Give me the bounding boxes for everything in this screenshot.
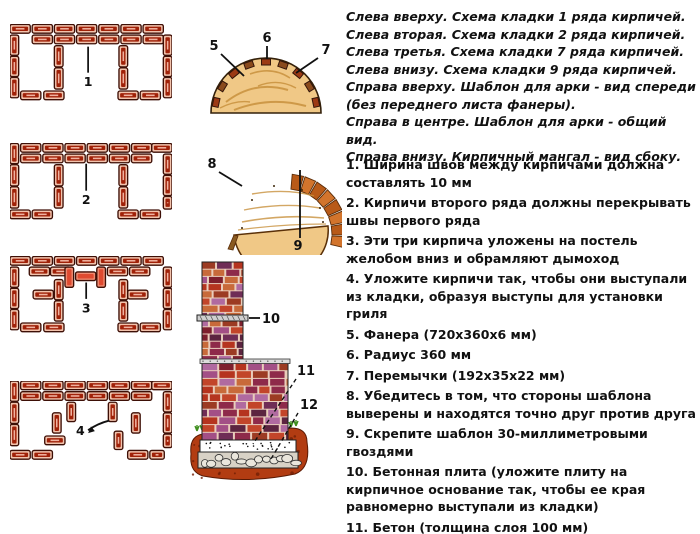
instruction-text: Уложите кирпичи так, чтобы они выступали… <box>346 271 687 321</box>
legend-block: Слева вверху. Схема кладки 1 ряда кирпич… <box>346 8 696 166</box>
legend-line-2: Слева вторая. Схема кладки 2 ряда кирпич… <box>346 26 696 44</box>
diagram-label-2: 2 <box>82 192 91 207</box>
brick-course-7-diagram: 3 <box>10 256 172 336</box>
instructions-list: 1. Ширина швов между кирпичами должна со… <box>346 156 696 534</box>
bbq-label-12: 12 <box>300 398 318 413</box>
diagram-label-1: 1 <box>84 74 93 89</box>
bbq-label-11: 11 <box>297 364 315 379</box>
legend-line-6: Справа в центре. Шаблон для арки - общий… <box>346 113 696 148</box>
instruction-number: 11. <box>346 520 368 534</box>
arch-template-front-view: 567 <box>192 28 342 120</box>
instruction-number: 2. <box>346 195 359 210</box>
instruction-item-11: 11. Бетон (толщина слоя 100 мм) <box>346 519 696 534</box>
legend-line-1: Слева вверху. Схема кладки 1 ряда кирпич… <box>346 8 696 26</box>
instruction-item-6: 6. Радиус 360 мм <box>346 346 696 364</box>
instruction-item-9: 9. Скрепите шаблон 30-миллиметровыми гво… <box>346 425 696 460</box>
legend-line-3: Слева третья. Схема кладки 7 ряда кирпич… <box>346 43 696 61</box>
instruction-number: 1. <box>346 157 359 172</box>
instruction-item-1: 1. Ширина швов между кирпичами должна со… <box>346 156 696 191</box>
instruction-text: Убедитесь в том, что стороны шаблона выв… <box>346 388 696 421</box>
instruction-item-7: 7. Перемычки (192x35x22 мм) <box>346 367 696 385</box>
instruction-text: Радиус 360 мм <box>359 347 471 362</box>
arch-side-label-8: 8 <box>207 157 216 172</box>
instruction-text: Ширина швов между кирпичами должна соста… <box>346 157 664 190</box>
instruction-sheet: Слева вверху. Схема кладки 1 ряда кирпич… <box>0 0 700 534</box>
diagram-label-3: 3 <box>82 300 91 315</box>
instruction-item-10: 10. Бетонная плита (уложите плиту на кир… <box>346 463 696 516</box>
brick-bbq-side-view: 101112 <box>185 258 355 488</box>
instruction-item-4: 4. Уложите кирпичи так, чтобы они выступ… <box>346 270 696 323</box>
bbq-label-10: 10 <box>262 312 280 327</box>
instruction-item-5: 5. Фанера (720x360x6 мм) <box>346 326 696 344</box>
instruction-text: Бетонная плита (уложите плиту на кирпичн… <box>346 464 645 514</box>
instruction-text: Фанера (720x360x6 мм) <box>359 327 536 342</box>
instruction-number: 3. <box>346 233 359 248</box>
arch-front-label-5: 5 <box>209 39 218 54</box>
brick-course-2-diagram: 2 <box>10 143 172 223</box>
brick-course-1-diagram: 1 <box>10 24 172 104</box>
instruction-text: Перемычки (192x35x22 мм) <box>359 368 565 383</box>
instruction-text: Кирпичи второго ряда должны перекрывать … <box>346 195 691 228</box>
arch-front-label-7: 7 <box>321 43 330 58</box>
arch-template-general-view: 89 <box>192 150 342 255</box>
arch-front-label-6: 6 <box>262 31 271 46</box>
diagram-label-4: 4 <box>76 423 85 438</box>
instruction-item-8: 8. Убедитесь в том, что стороны шаблона … <box>346 387 696 422</box>
instruction-text: Скрепите шаблон 30-миллиметровыми гвоздя… <box>346 426 648 459</box>
instruction-item-2: 2. Кирпичи второго ряда должны перекрыва… <box>346 194 696 229</box>
legend-line-5: Справа вверху. Шаблон для арки - вид спе… <box>346 78 696 113</box>
brick-course-9-diagram: 4 <box>10 381 172 464</box>
legend-line-4: Слева внизу. Схема кладки 9 ряда кирпиче… <box>346 61 696 79</box>
instruction-item-3: 3. Эти три кирпича уложены на постель же… <box>346 232 696 267</box>
arch-side-label-9: 9 <box>293 239 302 254</box>
instruction-text: Бетон (толщина слоя 100 мм) <box>368 520 588 534</box>
instruction-text: Эти три кирпича уложены на постель желоб… <box>346 233 638 266</box>
